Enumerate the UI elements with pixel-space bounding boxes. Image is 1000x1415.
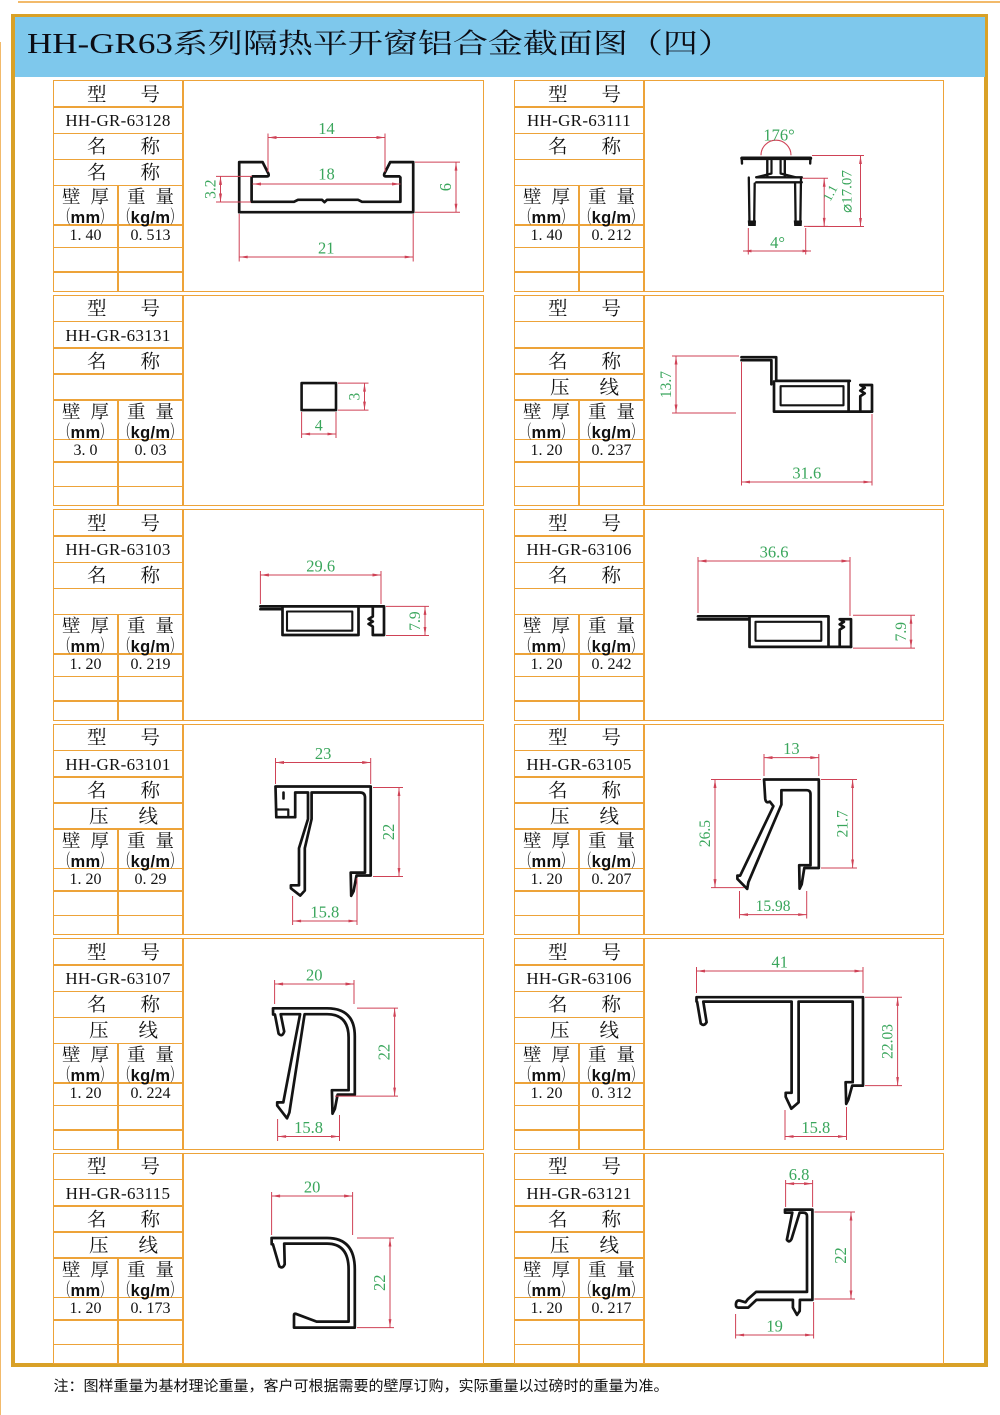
svg-text:19: 19 [766, 1316, 783, 1335]
svg-text:⌀17.07: ⌀17.07 [840, 170, 856, 213]
svg-text:3: 3 [347, 392, 364, 400]
svg-text:22: 22 [375, 1044, 394, 1061]
svg-text:36.6: 36.6 [760, 543, 789, 562]
svg-text:22: 22 [379, 823, 398, 840]
svg-text:18: 18 [318, 165, 335, 184]
svg-text:29.6: 29.6 [306, 557, 335, 576]
svg-text:15.8: 15.8 [801, 1118, 830, 1137]
svg-text:20: 20 [304, 1177, 321, 1196]
svg-text:4°: 4° [770, 233, 785, 252]
svg-text:22.03: 22.03 [880, 1024, 897, 1059]
svg-text:26.5: 26.5 [697, 819, 714, 846]
svg-text:13.7: 13.7 [658, 370, 675, 397]
svg-text:3.2: 3.2 [203, 180, 220, 199]
svg-text:22: 22 [831, 1247, 850, 1264]
svg-text:15.8: 15.8 [294, 1118, 323, 1137]
svg-text:1.1: 1.1 [820, 182, 841, 203]
svg-text:15.98: 15.98 [756, 898, 791, 915]
svg-text:21: 21 [318, 239, 335, 258]
svg-text:13: 13 [783, 739, 800, 758]
svg-text:15.8: 15.8 [310, 902, 339, 921]
svg-text:4: 4 [315, 417, 323, 434]
svg-text:41: 41 [772, 953, 789, 972]
svg-text:21.7: 21.7 [835, 809, 852, 836]
svg-text:176°: 176° [763, 126, 794, 145]
svg-text:6.8: 6.8 [789, 1165, 810, 1184]
svg-text:6: 6 [436, 183, 455, 191]
svg-text:31.6: 31.6 [792, 463, 821, 482]
svg-text:22: 22 [370, 1274, 389, 1291]
svg-text:14: 14 [318, 119, 335, 138]
svg-text:7.9: 7.9 [893, 622, 910, 642]
svg-text:7.9: 7.9 [407, 611, 424, 631]
svg-text:23: 23 [315, 744, 332, 763]
svg-text:20: 20 [306, 966, 323, 985]
